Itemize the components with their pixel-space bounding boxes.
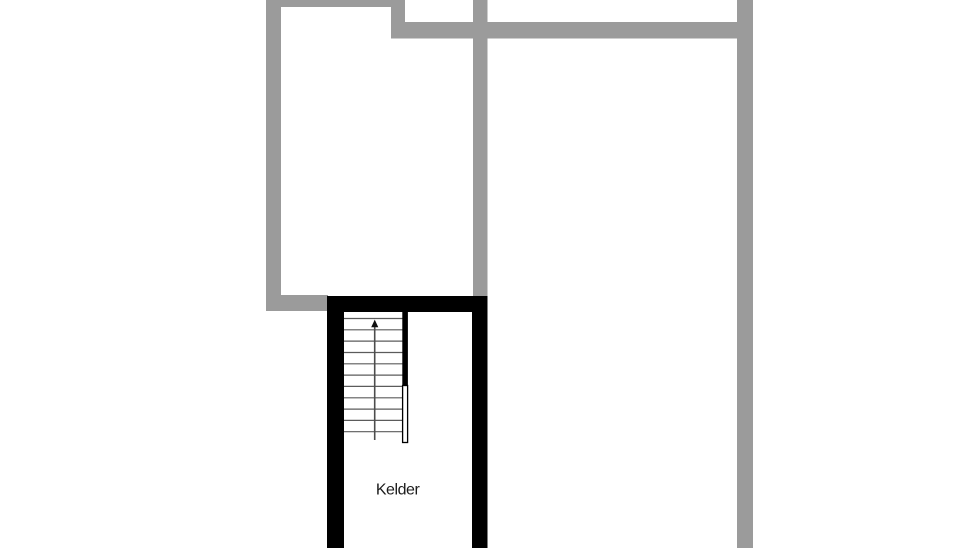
svg-text:Kelder: Kelder <box>376 482 421 499</box>
